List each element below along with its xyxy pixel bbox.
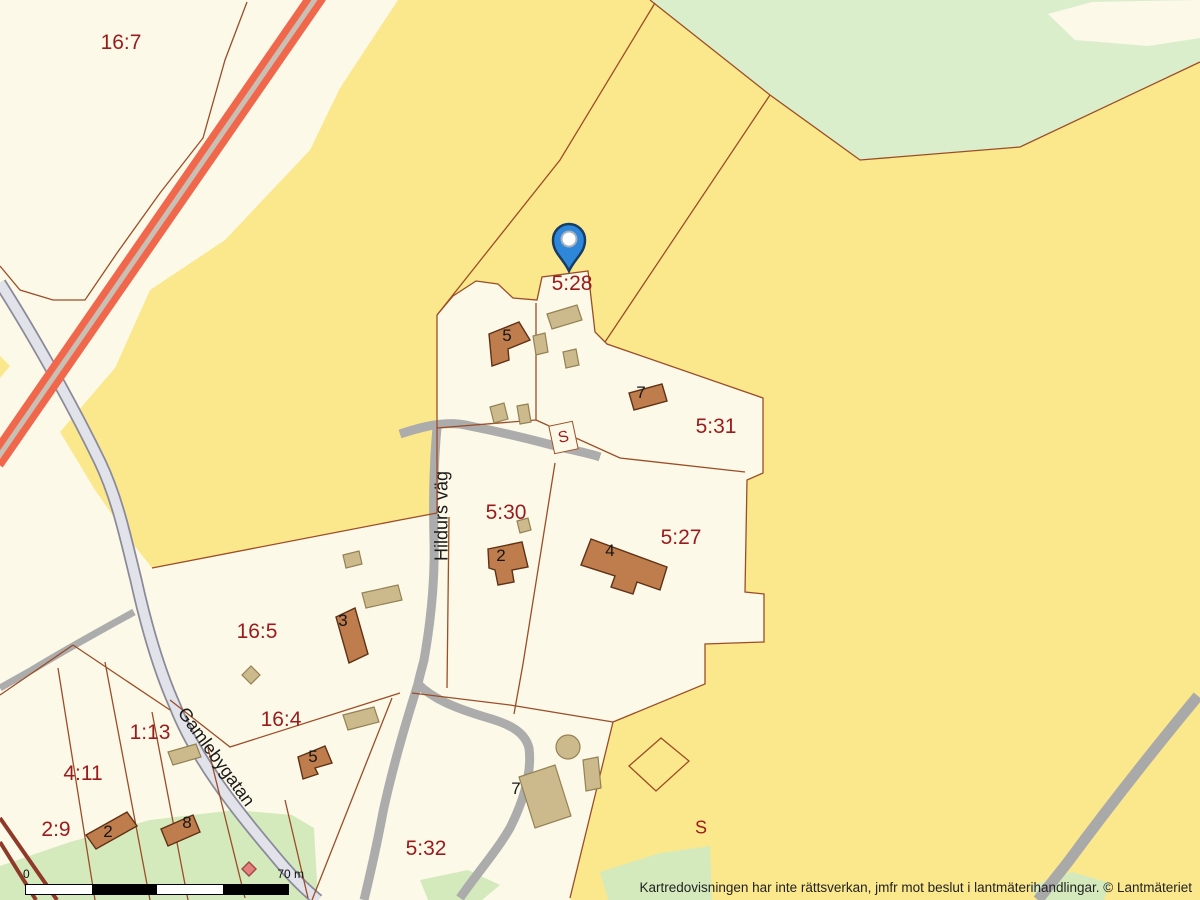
map-canvas[interactable]: 16:7 5:28 5:31 5:30 5:27 16:5 16:4 1:13 … [0, 0, 1200, 900]
outbuilding [583, 757, 601, 791]
outbuilding [517, 518, 531, 533]
symbol-s-boxed-text: S [556, 428, 570, 448]
pin-center-dot [562, 232, 577, 247]
scale-segment [157, 885, 223, 894]
scale-segment [26, 885, 92, 894]
outbuilding-round [556, 735, 580, 759]
attribution-text: Kartredovisningen har inte rättsverkan, … [640, 880, 1192, 895]
outbuilding [517, 404, 531, 424]
outbuilding [563, 349, 579, 368]
scale-segment [223, 885, 289, 894]
scale-start-label: 0 [23, 867, 30, 881]
scale-end-label: 70 m [262, 867, 304, 881]
scale-segment [92, 885, 158, 894]
map-graphics [0, 0, 1200, 900]
outbuilding [533, 333, 548, 355]
outbuilding [490, 403, 508, 423]
scale-bar [25, 884, 289, 895]
